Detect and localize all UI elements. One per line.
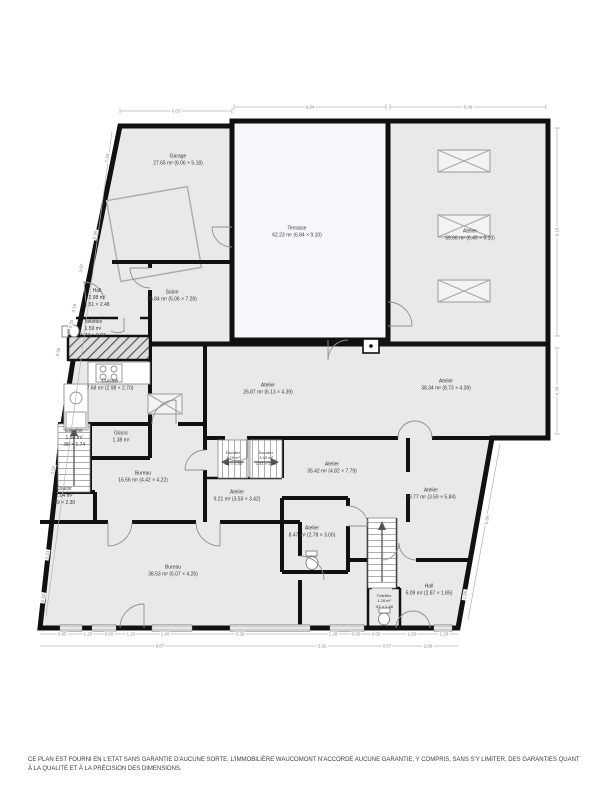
dimension-label: 1.28 xyxy=(328,632,339,637)
room-dims: (5.07 × 4.26) xyxy=(169,571,198,577)
dimension-label: 1.40 xyxy=(160,632,171,637)
dimension-label: 1.20 xyxy=(126,632,137,637)
room-area: 8.47 m² xyxy=(289,532,306,538)
room-area: 35.42 m² xyxy=(307,468,327,474)
room-area: 3.43 m² xyxy=(259,455,273,460)
room-label-bureau-s: Bureau 38.53 m² (5.07 × 4.26) xyxy=(148,564,198,578)
dimension-label: 0.60 xyxy=(351,632,362,637)
room-label-atelier-c: Atelier 26.87 m² (6.13 × 4.39) xyxy=(243,382,293,396)
room-dims: (8.73 × 4.39) xyxy=(442,385,471,391)
room-area: 26.87 m² xyxy=(243,389,263,395)
room-label-hall-se: Hall 5.09 m² (2.87 × 1.85) xyxy=(406,583,453,597)
room-dims: (4.42 × 4.22) xyxy=(139,477,168,483)
room-name: Atelier xyxy=(307,461,357,468)
room-dims: 1.74 × 0.97 xyxy=(80,332,105,338)
room-label-atelier-ne: Atelier 59.66 m² (6.49 × 9.10) xyxy=(445,228,495,242)
dimension-label: 0.67 xyxy=(382,644,393,649)
room-dims: (6.84 × 9.10) xyxy=(293,232,322,238)
toilet-icon xyxy=(306,551,318,570)
room-label-atelier-sw: Atelier 9.21 m² (3.53 × 3.42) xyxy=(214,489,261,503)
room-area: 27.65 m² xyxy=(153,160,173,166)
room-label-escalier-c1: Escalier 1.29 m² .86 × 1.50 xyxy=(224,450,242,466)
dimension-label: 9.10 xyxy=(555,227,560,238)
hatched-shaft xyxy=(68,336,150,360)
room-label-bureau-mid: Bureau 16.56 m² (4.42 × 4.22) xyxy=(118,470,168,484)
dimension-label: 2.68 xyxy=(423,644,434,649)
room-name: Salon xyxy=(147,289,197,296)
room-area: 16.56 m² xyxy=(118,477,138,483)
room-label-toilettes-nw: Toilettes 1.59 m² 1.74 × 0.97 xyxy=(80,319,105,339)
room-dims: (6.06 × 5.18) xyxy=(174,160,203,166)
room-name: Cuisine xyxy=(87,378,134,385)
room-name: Couloir xyxy=(53,486,75,493)
dimension-label: 0.60 xyxy=(104,632,115,637)
room-name: Escalier xyxy=(63,428,85,435)
room-dims: .87 × 1.48 xyxy=(375,604,393,609)
dimension-label: 4.39 xyxy=(555,386,560,397)
room-label-hall-nw: Hall 2.98 m² 1.51 × 2.48 xyxy=(84,288,109,308)
room-area: 2.04 m² xyxy=(56,493,73,499)
room-label-atelier-s: Atelier 35.42 m² (4.82 × 7.79) xyxy=(307,461,357,475)
room-area: 1.59 m² xyxy=(85,326,102,332)
room-name: Atelier xyxy=(243,382,293,389)
stairs-southeast xyxy=(368,518,396,588)
room-label-atelier-wc: Atelier 8.47 m² (2.78 × 3.05) xyxy=(289,525,336,539)
room-dims: (4.82 × 7.79) xyxy=(328,468,357,474)
room-dims: (3.53 × 3.42) xyxy=(232,496,261,502)
room-dims: 1.41 × 2.43 xyxy=(256,461,276,466)
skylight-icon xyxy=(438,150,490,172)
room-label-cuisine: Cuisine 7.68 m² (2.98 × 2.70) xyxy=(87,378,134,392)
dimension-label: 6.84 xyxy=(305,105,316,110)
room-dims: 1.51 × 2.48 xyxy=(84,301,109,307)
room-area: 9.21 m² xyxy=(214,496,231,502)
dimension-label: 3.92 xyxy=(317,644,328,649)
room-area: 62.23 m² xyxy=(272,232,292,238)
room-name: Atelier xyxy=(214,489,261,496)
room-area: 18.77 m² xyxy=(406,494,426,500)
room-name: Toilettes xyxy=(80,319,105,326)
room-name: Bureau xyxy=(148,564,198,571)
room-dims: (2.87 × 1.85) xyxy=(424,590,453,596)
room-label-terrasse: Terrasse 62.23 m² (6.84 × 9.10) xyxy=(272,225,322,239)
room-area: 1.29 m² xyxy=(226,455,240,460)
dimension-label: 0.60 xyxy=(371,632,382,637)
room-area: 38.34 m² xyxy=(421,385,441,391)
room-dims: (5.06 × 7.28) xyxy=(168,296,197,302)
room-dims: .86 × 1.74 xyxy=(63,441,85,447)
room-area: 59.66 m² xyxy=(445,235,465,241)
dimension-label: 6.49 xyxy=(463,105,474,110)
dimension-label: 1.20 xyxy=(83,632,94,637)
room-dims: (6.49 × 9.10) xyxy=(466,235,495,241)
room-dims: .86 × 1.50 xyxy=(224,461,242,466)
dimension-label: 6.03 xyxy=(171,109,182,114)
skylight-icon xyxy=(148,394,182,414)
room-area: 26.84 m² xyxy=(147,296,167,302)
room-name: Bureau xyxy=(118,470,168,477)
room-name: Atelier xyxy=(406,487,456,494)
boiler-icon xyxy=(363,339,379,353)
dimension-label: 3.38 xyxy=(235,632,246,637)
room-dims: (3.59 × 5.84) xyxy=(427,494,456,500)
room-area: 38.53 m² xyxy=(148,571,168,577)
room-label-garage: Garage 27.65 m² (6.06 × 5.18) xyxy=(153,153,203,167)
room-area: 2.98 m² xyxy=(89,295,106,301)
room-label-escalier-w: Escalier 1.50 m² .86 × 1.74 xyxy=(63,428,85,448)
room-name: Hall xyxy=(406,583,453,590)
dimension-label: 9.07 xyxy=(155,644,166,649)
disclaimer: CE PLAN EST FOURNI EN L'ETAT SANS GARANT… xyxy=(28,756,580,774)
room-label-glacis: Glacis 1.38 m² xyxy=(113,430,130,444)
room-area: 1.28 m² xyxy=(377,598,391,603)
skylight-icon xyxy=(438,280,490,302)
room-area: 7.68 m² xyxy=(87,385,104,391)
dimension-label: 0.95 xyxy=(57,632,68,637)
room-label-atelier-se: Atelier 18.77 m² (3.59 × 5.84) xyxy=(406,487,456,501)
room-label-atelier-e: Atelier 38.34 m² (8.73 × 4.39) xyxy=(421,378,471,392)
room-name: Hall xyxy=(84,288,109,295)
dimension-label: 1.26 xyxy=(439,632,450,637)
room-label-couloir: Couloir 2.04 m² .89 × 2.30 xyxy=(53,486,75,506)
room-dims: .89 × 2.30 xyxy=(53,499,75,505)
room-label-escalier-c2: Escalier 3.43 m² 1.41 × 2.43 xyxy=(256,450,276,466)
room-dims: (6.13 × 4.39) xyxy=(264,389,293,395)
dimension-label: 1.50 xyxy=(407,632,418,637)
room-name: Garage xyxy=(153,153,203,160)
room-label-toilettes-s: Toilettes 1.28 m² .87 × 1.48 xyxy=(375,593,393,609)
room-dims: (2.78 × 3.05) xyxy=(307,532,336,538)
floor-plan-page: { "disclaimer": "CE PLAN EST FOURNI EN L… xyxy=(0,0,603,800)
room-name: Atelier xyxy=(289,525,336,532)
toilet-icon xyxy=(379,608,391,625)
room-area: 5.09 m² xyxy=(406,590,423,596)
room-name: Atelier xyxy=(421,378,471,385)
room-name: Atelier xyxy=(445,228,495,235)
room-label-salon: Salon 26.84 m² (5.06 × 7.28) xyxy=(147,289,197,303)
room-dims: (2.98 × 2.70) xyxy=(105,385,134,391)
room-name: Terrasse xyxy=(272,225,322,232)
room-name: Glacis xyxy=(113,430,130,437)
room-area: 1.38 m² xyxy=(113,437,130,443)
room-area: 1.50 m² xyxy=(66,435,83,441)
floor-plan-canvas xyxy=(0,0,603,800)
